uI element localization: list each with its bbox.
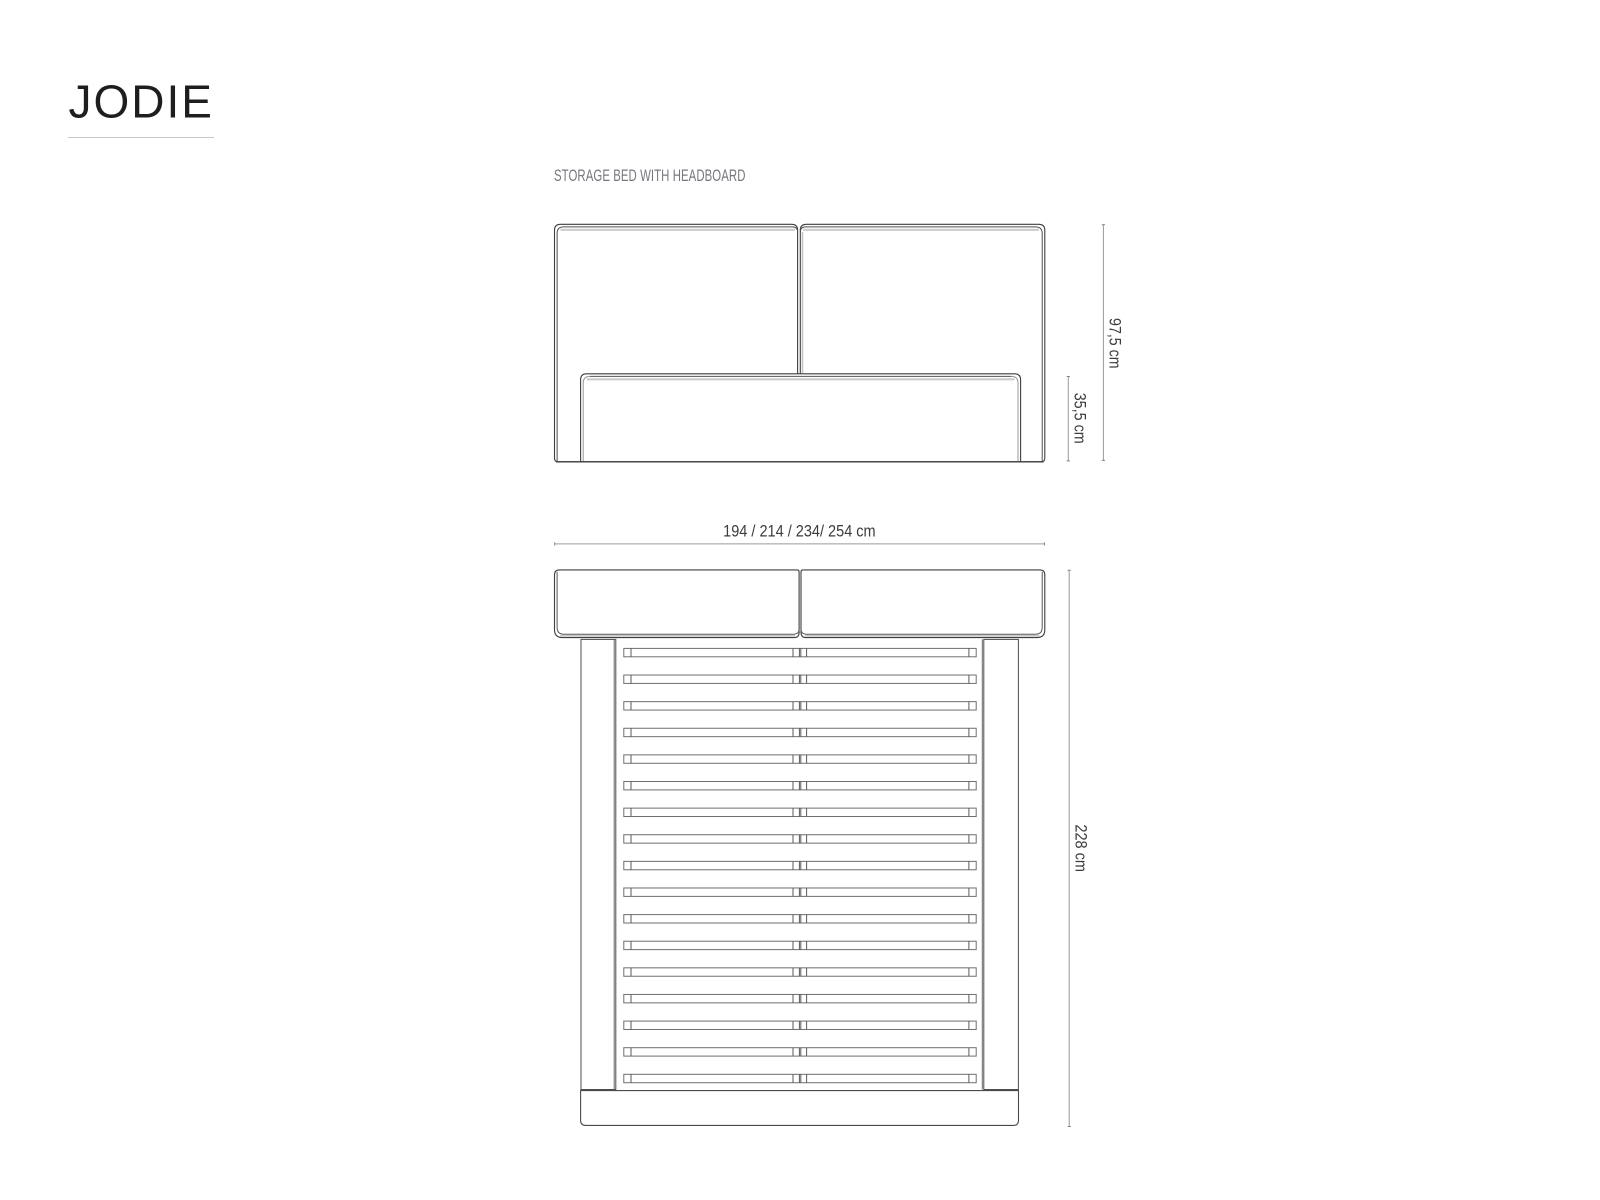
svg-text:STORAGE BED WITH HEADBOARD: STORAGE BED WITH HEADBOARD bbox=[554, 167, 746, 185]
svg-text:194 / 214 / 234/ 254 cm: 194 / 214 / 234/ 254 cm bbox=[723, 523, 876, 541]
svg-text:97,5 cm: 97,5 cm bbox=[1106, 318, 1124, 369]
svg-text:35,5 cm: 35,5 cm bbox=[1070, 393, 1088, 444]
svg-text:JODIE: JODIE bbox=[69, 76, 214, 128]
svg-text:228 cm: 228 cm bbox=[1071, 824, 1089, 872]
